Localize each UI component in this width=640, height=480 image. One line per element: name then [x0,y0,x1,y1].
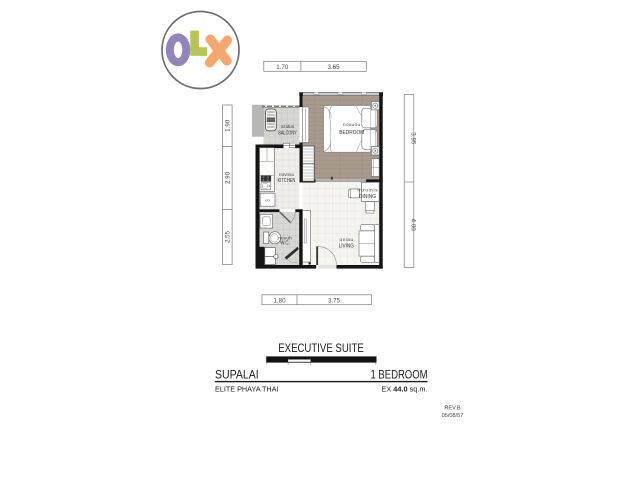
svg-text:LIVING: LIVING [339,243,354,249]
svg-text:1.70: 1.70 [276,64,289,71]
svg-text:BALCONY: BALCONY [278,130,297,136]
svg-text:xxx: xxx [265,198,271,202]
svg-text:REV.B: REV.B [444,406,461,412]
svg-text:szidus: szidus [281,124,295,129]
svg-text:3.95: 3.95 [409,132,416,145]
svg-text:1 BEDROOM: 1 BEDROOM [371,368,428,381]
svg-text:2.55: 2.55 [224,230,231,243]
svg-text:3.65: 3.65 [327,64,340,71]
svg-text:4.00: 4.00 [409,219,416,232]
svg-text:05/08/57: 05/08/57 [442,413,464,419]
svg-text:W.C.: W.C. [280,241,290,247]
svg-text:1.80: 1.80 [273,297,286,304]
svg-text:ELITE PHAYA THAI: ELITE PHAYA THAI [215,384,279,393]
svg-text:EXECUTIVE SUITE: EXECUTIVE SUITE [278,341,364,355]
svg-text:3.75: 3.75 [328,297,341,304]
svg-text:BEDROOM: BEDROOM [339,130,364,136]
svg-text:2.90: 2.90 [224,171,231,184]
svg-text:SUPALAI: SUPALAI [215,368,259,381]
svg-text:KITCHEN: KITCHEN [278,178,296,184]
svg-text:inzoinis: inzoinis [358,187,379,192]
svg-text:novnsu: novnsu [279,172,294,177]
svg-text:uviau: uviau [340,237,354,242]
svg-text:1.90: 1.90 [224,119,231,132]
svg-text:DINING: DINING [359,194,376,200]
svg-text:novuou: novuou [343,122,360,127]
svg-text:EX 44.0 sq.m.: EX 44.0 sq.m. [382,384,428,393]
